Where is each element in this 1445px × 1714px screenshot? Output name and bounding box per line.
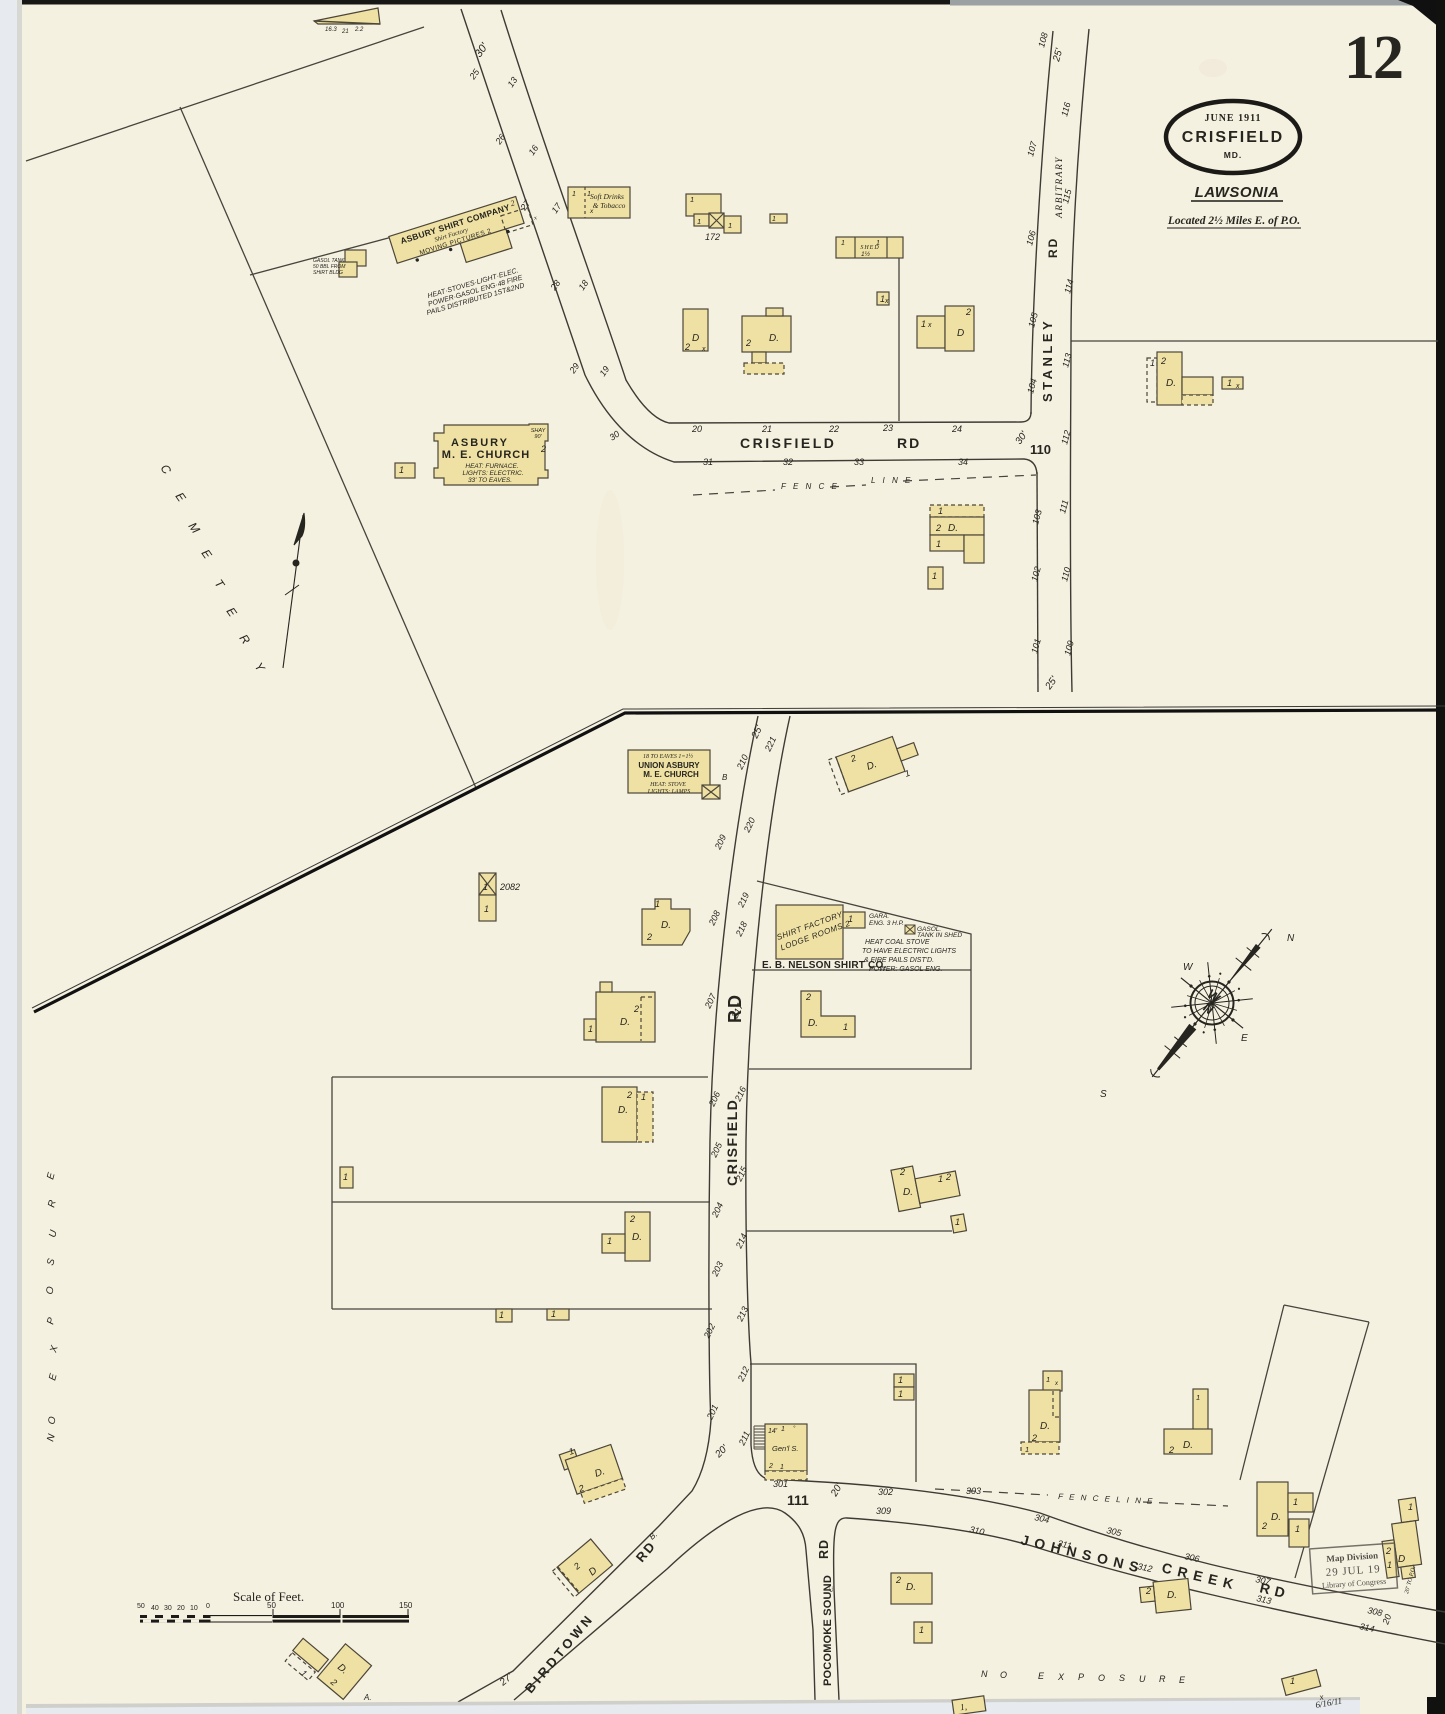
svg-text:D.: D. — [808, 1018, 818, 1029]
svg-text:1: 1 — [588, 1024, 593, 1034]
svg-text:50: 50 — [267, 1601, 276, 1610]
svg-text:100: 100 — [331, 1601, 345, 1610]
svg-text:12: 12 — [1344, 24, 1402, 92]
svg-text:ENG. 3 H.P.: ENG. 3 H.P. — [869, 920, 904, 927]
svg-text:2: 2 — [805, 992, 811, 1002]
svg-text:1½: 1½ — [861, 250, 871, 258]
svg-text:B: B — [722, 773, 728, 782]
svg-text:1: 1 — [343, 1172, 348, 1182]
svg-text:RD: RD — [817, 1539, 831, 1559]
svg-text:22: 22 — [828, 424, 839, 434]
svg-text:F E N C E: F E N C E — [781, 482, 839, 491]
svg-text:HEAT COAL STOVE: HEAT COAL STOVE — [865, 939, 930, 946]
svg-text:HEAT: FURNACE.: HEAT: FURNACE. — [465, 463, 518, 470]
svg-text:x: x — [927, 322, 932, 329]
svg-text:150: 150 — [399, 1601, 413, 1610]
svg-text:90': 90' — [534, 434, 542, 440]
svg-text:2: 2 — [965, 307, 971, 317]
svg-text:POWER: GASOL ENG.: POWER: GASOL ENG. — [869, 966, 942, 973]
svg-text:O: O — [1098, 1673, 1105, 1683]
svg-text:1: 1 — [1150, 358, 1155, 368]
svg-text:33' TO EAVES.: 33' TO EAVES. — [468, 477, 512, 484]
svg-text:33: 33 — [854, 457, 864, 467]
svg-text:1: 1 — [690, 195, 694, 204]
svg-text:E: E — [1038, 1671, 1045, 1681]
svg-text:2: 2 — [646, 932, 652, 942]
svg-text:Soft Drinks: Soft Drinks — [590, 192, 624, 201]
svg-text:2: 2 — [745, 338, 751, 348]
svg-text:ASBURY: ASBURY — [451, 437, 509, 449]
svg-text:S: S — [1119, 1673, 1125, 1683]
svg-text:1: 1 — [607, 1236, 612, 1246]
svg-text:2: 2 — [945, 1172, 951, 1182]
svg-text:D: D — [692, 333, 699, 344]
svg-text:x: x — [884, 298, 889, 305]
svg-text:1: 1 — [919, 1625, 924, 1635]
svg-text:1: 1 — [1295, 1524, 1300, 1534]
svg-text:1: 1 — [499, 1310, 504, 1320]
svg-text:D.: D. — [1167, 1590, 1177, 1601]
svg-text:D.: D. — [769, 333, 779, 344]
svg-text:TO HAVE ELECTRIC LIGHTS: TO HAVE ELECTRIC LIGHTS — [862, 948, 956, 955]
svg-text:1: 1 — [781, 1426, 785, 1433]
svg-text:x: x — [1235, 383, 1240, 390]
svg-text:D.: D. — [618, 1105, 628, 1116]
svg-text:172: 172 — [705, 232, 720, 242]
svg-text:2.2: 2.2 — [354, 27, 364, 33]
svg-text:ARBITRARY: ARBITRARY — [1055, 156, 1065, 219]
svg-text:D.: D. — [620, 1017, 630, 1028]
svg-text:1: 1 — [938, 506, 943, 516]
svg-text:1: 1 — [898, 1375, 903, 1385]
svg-text:2: 2 — [629, 1214, 635, 1224]
svg-text:x: x — [701, 346, 706, 353]
svg-text:1: 1 — [1387, 1560, 1392, 1570]
svg-text:& FIRE PAILS DIST'D.: & FIRE PAILS DIST'D. — [864, 957, 934, 964]
svg-text:1: 1 — [780, 1464, 784, 1471]
svg-text:1: 1 — [772, 216, 776, 223]
svg-text:2: 2 — [935, 523, 941, 533]
svg-text:1: 1 — [938, 1174, 943, 1184]
svg-text:2: 2 — [1145, 1586, 1151, 1596]
svg-text:GARA.: GARA. — [869, 913, 889, 920]
svg-text:D: D — [1398, 1554, 1405, 1565]
svg-text:2: 2 — [540, 444, 546, 454]
svg-text:1: 1 — [1025, 1445, 1029, 1454]
svg-text:10: 10 — [190, 1605, 198, 1612]
svg-text:SHED: SHED — [860, 245, 879, 251]
svg-text:303: 303 — [966, 1486, 981, 1496]
svg-text:N: N — [981, 1669, 988, 1679]
svg-text:1: 1 — [399, 465, 404, 475]
svg-text:111: 111 — [787, 1492, 809, 1508]
svg-text:1: 1 — [484, 904, 489, 914]
svg-text:31: 31 — [703, 457, 713, 467]
svg-text:2: 2 — [633, 1004, 639, 1014]
svg-text:JUNE 1911: JUNE 1911 — [1204, 113, 1261, 124]
svg-text:32: 32 — [783, 457, 793, 467]
svg-text:1: 1 — [1293, 1497, 1298, 1507]
svg-text:1: 1 — [921, 319, 926, 329]
svg-text:2: 2 — [1261, 1521, 1267, 1531]
svg-text:1: 1 — [572, 191, 576, 198]
svg-text:34: 34 — [958, 457, 968, 467]
svg-text:D.: D. — [1166, 378, 1176, 389]
svg-text:24: 24 — [951, 424, 962, 434]
svg-text:23: 23 — [882, 423, 893, 433]
svg-text:M. E. CHURCH: M. E. CHURCH — [442, 449, 530, 461]
svg-text:2: 2 — [895, 1575, 901, 1585]
svg-text:2: 2 — [768, 1463, 773, 1470]
svg-text:D.: D. — [1040, 1421, 1050, 1432]
svg-text:1: 1 — [1046, 1375, 1050, 1384]
svg-text:1: 1 — [1227, 378, 1232, 388]
svg-text:1: 1 — [1408, 1502, 1413, 1512]
svg-text:CRISFIELD: CRISFIELD — [740, 435, 836, 451]
svg-text:2: 2 — [626, 1090, 632, 1100]
svg-text:30: 30 — [164, 1605, 172, 1612]
svg-text:14': 14' — [768, 1428, 778, 1435]
svg-text:50: 50 — [137, 1603, 145, 1610]
svg-text:2: 2 — [1168, 1445, 1174, 1455]
svg-text:L I N E: L I N E — [871, 476, 913, 485]
svg-text:D.: D. — [661, 920, 671, 931]
svg-text:STANLEY: STANLEY — [1040, 318, 1055, 402]
svg-text:1: 1 — [841, 240, 845, 247]
svg-text:A.: A. — [363, 1693, 372, 1702]
svg-text:21: 21 — [761, 424, 772, 434]
svg-text:RD: RD — [897, 435, 921, 451]
svg-text:R: R — [1159, 1674, 1166, 1684]
svg-text:E: E — [1179, 1675, 1186, 1685]
svg-text:Gen'l S.: Gen'l S. — [772, 1444, 798, 1453]
svg-text:LAWSONIA: LAWSONIA — [1195, 184, 1280, 201]
svg-text:1: 1 — [551, 1309, 556, 1319]
svg-text:1: 1 — [936, 539, 941, 549]
svg-text:1,: 1, — [959, 1701, 967, 1712]
svg-text:E: E — [1241, 1033, 1248, 1044]
svg-text:2: 2 — [899, 1167, 905, 1177]
svg-text:O: O — [1000, 1670, 1007, 1680]
svg-text:Located 2½ Miles E. of P.O.: Located 2½ Miles E. of P.O. — [1167, 215, 1300, 227]
svg-text:U: U — [1139, 1674, 1146, 1684]
svg-text:HEAT: STOVE: HEAT: STOVE — [649, 782, 686, 788]
svg-text:16.3: 16.3 — [325, 27, 337, 33]
svg-text:1: 1 — [641, 1092, 646, 1102]
svg-text:LIGHTS: LAMPS: LIGHTS: LAMPS — [647, 789, 691, 795]
svg-text:1: 1 — [728, 221, 732, 230]
svg-text:0: 0 — [206, 1603, 210, 1610]
svg-text:1: 1 — [483, 882, 488, 892]
svg-text:1: 1 — [655, 899, 660, 909]
svg-text:X: X — [1057, 1672, 1065, 1682]
svg-text:D.: D. — [1271, 1512, 1281, 1523]
svg-text:N: N — [1287, 933, 1295, 944]
svg-text:S: S — [1100, 1089, 1107, 1100]
svg-text:D.: D. — [1183, 1440, 1193, 1451]
svg-text:D.: D. — [632, 1232, 642, 1243]
svg-text:& Tobacco: & Tobacco — [593, 201, 626, 210]
svg-text:309: 309 — [876, 1506, 891, 1516]
svg-text:20: 20 — [691, 424, 702, 434]
svg-text:SHIRT BLDG: SHIRT BLDG — [313, 270, 343, 276]
svg-text:W: W — [1183, 962, 1194, 973]
svg-text:CRISFIELD: CRISFIELD — [1182, 129, 1284, 146]
svg-text:P: P — [1078, 1672, 1084, 1682]
svg-text:2: 2 — [1160, 356, 1166, 366]
svg-text:1: 1 — [697, 217, 701, 226]
svg-text:21: 21 — [341, 29, 349, 35]
svg-text:2082: 2082 — [499, 882, 520, 892]
svg-text:1: 1 — [843, 1022, 848, 1032]
svg-text:TANK IN SHED: TANK IN SHED — [917, 932, 962, 939]
svg-text:M. E. CHURCH: M. E. CHURCH — [643, 770, 699, 779]
svg-text:LIGHTS: ELECTRIC.: LIGHTS: ELECTRIC. — [462, 470, 523, 477]
svg-text:D: D — [957, 328, 964, 339]
svg-text:1: 1 — [1290, 1676, 1295, 1686]
svg-text:2: 2 — [1031, 1433, 1037, 1443]
svg-text:1: 1 — [1196, 1393, 1200, 1402]
svg-text:1: 1 — [955, 1217, 960, 1227]
svg-text:40: 40 — [151, 1605, 159, 1612]
svg-text:1: 1 — [932, 571, 937, 581]
svg-text:MD.: MD. — [1224, 150, 1243, 160]
svg-text:RD: RD — [1046, 237, 1060, 258]
svg-text:D.: D. — [903, 1187, 913, 1198]
svg-text:18 TO EAVES 1=1½: 18 TO EAVES 1=1½ — [643, 753, 693, 760]
svg-text:2: 2 — [1385, 1546, 1391, 1556]
svg-text:301: 301 — [773, 1479, 788, 1489]
svg-text:2: 2 — [684, 342, 690, 352]
svg-text:110: 110 — [1030, 442, 1051, 457]
svg-text:20: 20 — [177, 1605, 185, 1612]
svg-text:D.: D. — [948, 523, 958, 534]
svg-text:1: 1 — [898, 1389, 903, 1399]
svg-text:C.: C. — [828, 1586, 835, 1592]
svg-text:D.: D. — [906, 1582, 916, 1593]
svg-text:302: 302 — [878, 1487, 893, 1497]
svg-text:UNION ASBURY: UNION ASBURY — [638, 761, 700, 770]
